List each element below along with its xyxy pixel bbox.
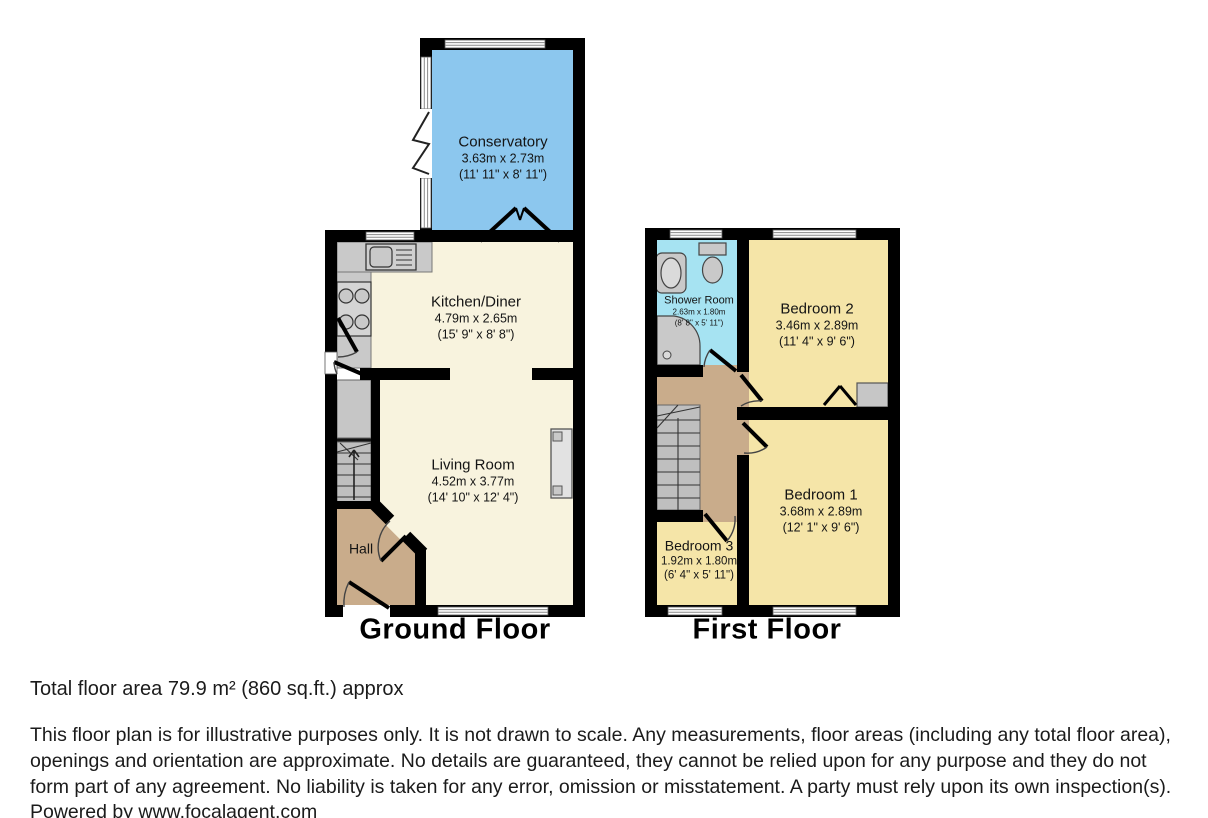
conservatory-top-window bbox=[445, 40, 545, 48]
room-dims-metric: 3.68m x 2.89m bbox=[780, 505, 863, 520]
room-name: Bedroom 1 bbox=[780, 487, 863, 505]
room-dims-metric: 4.79m x 2.65m bbox=[431, 312, 521, 327]
room-name: Living Room bbox=[428, 457, 519, 475]
room-dims-imperial: (11' 4" x 9' 6") bbox=[776, 334, 859, 349]
room-dims-imperial: (15' 9" x 8' 8") bbox=[431, 327, 521, 342]
room-label-bedroom1: Bedroom 1 3.68m x 2.89m (12' 1" x 9' 6") bbox=[780, 487, 863, 536]
room-name: Bedroom 3 bbox=[661, 537, 737, 554]
kitchen-living-opening bbox=[450, 368, 532, 380]
room-dims-metric: 3.63m x 2.73m bbox=[458, 152, 547, 167]
ground-floor-title: Ground Floor bbox=[359, 614, 550, 647]
first-floor-title: First Floor bbox=[693, 614, 842, 647]
stairs-icon-first-floor bbox=[657, 405, 700, 510]
room-dims-metric: 1.92m x 1.80m bbox=[661, 555, 737, 569]
room-name: Shower Room bbox=[664, 295, 734, 308]
sink-icon bbox=[366, 244, 416, 270]
room-label-kitchen-diner: Kitchen/Diner 4.79m x 2.65m (15' 9" x 8'… bbox=[431, 294, 521, 343]
room-dims-imperial: (11' 11" x 8' 11") bbox=[458, 167, 547, 182]
room-dims-imperial: (14' 10" x 12' 4") bbox=[428, 490, 519, 505]
room-dims-imperial: (12' 1" x 9' 6") bbox=[780, 520, 863, 535]
shower-room-window bbox=[670, 230, 722, 238]
stairs-icon bbox=[337, 440, 371, 503]
room-dims-metric: 2.63m x 1.80m bbox=[664, 308, 734, 319]
bedroom2-window bbox=[773, 230, 856, 238]
room-label-hall: Hall bbox=[349, 540, 373, 557]
disclaimer-text: This floor plan is for illustrative purp… bbox=[30, 723, 1188, 818]
room-label-living-room: Living Room 4.52m x 3.77m (14' 10" x 12'… bbox=[428, 457, 519, 506]
room-name: Hall bbox=[349, 540, 373, 557]
fireplace bbox=[551, 429, 572, 498]
floorplan-page: Conservatory 3.63m x 2.73m (11' 11" x 8'… bbox=[0, 0, 1208, 818]
room-dims-metric: 4.52m x 3.77m bbox=[428, 475, 519, 490]
room-label-shower-room: Shower Room 2.63m x 1.80m (8' 8" x 5' 11… bbox=[664, 295, 734, 330]
total-floor-area: Total floor area 79.9 m² (860 sq.ft.) ap… bbox=[30, 678, 404, 701]
room-name: Conservatory bbox=[458, 134, 547, 152]
kitchen-window bbox=[366, 232, 414, 240]
conservatory-side-door bbox=[413, 109, 432, 178]
room-name: Bedroom 2 bbox=[776, 301, 859, 319]
room-label-bedroom2: Bedroom 2 3.46m x 2.89m (11' 4" x 9' 6") bbox=[776, 301, 859, 350]
room-label-conservatory: Conservatory 3.63m x 2.73m (11' 11" x 8'… bbox=[458, 134, 547, 183]
basin-icon bbox=[656, 253, 686, 293]
room-dims-metric: 3.46m x 2.89m bbox=[776, 319, 859, 334]
understairs-cupboard bbox=[337, 380, 371, 438]
room-label-bedroom3: Bedroom 3 1.92m x 1.80m (6' 4" x 5' 11") bbox=[661, 537, 737, 582]
room-name: Kitchen/Diner bbox=[431, 294, 521, 312]
room-dims-imperial: (8' 8" x 5' 11") bbox=[664, 319, 734, 330]
room-dims-imperial: (6' 4" x 5' 11") bbox=[661, 569, 737, 583]
